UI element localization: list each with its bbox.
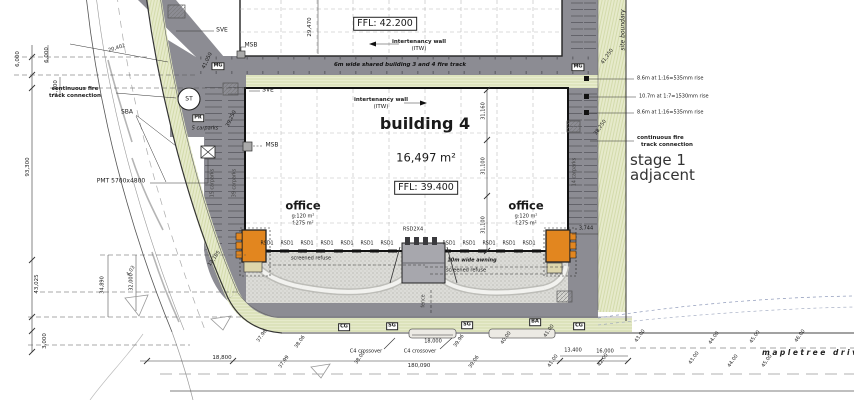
site-plan: FFL: 42.200 building 4 16,497 m² FFL: 39… <box>0 0 854 400</box>
rsd1-label: RSD1 <box>462 241 475 246</box>
rsd1-label: RSD1 <box>380 241 393 246</box>
sve-top-label: SVE <box>216 28 228 35</box>
sba-label: SBA <box>121 110 133 117</box>
msb-side-label: MSB <box>265 143 278 150</box>
dim-18800: 18,800 <box>212 355 231 361</box>
msb-side-unit <box>243 142 252 151</box>
cg-marker-left: CG <box>338 323 350 331</box>
dim-31100-a: 31,100 <box>481 157 487 175</box>
cg-marker-right: CG <box>573 322 585 330</box>
fire-track-label: 6m wide shared building 3 and 4 fire tra… <box>334 62 466 68</box>
ramp-label-1: 8.6m at 1:16=535mm rise <box>637 76 703 82</box>
dim-6000-b: 6,000 <box>44 47 50 63</box>
carparks-39-label: 39 carparks <box>232 169 237 197</box>
dim-13400: 13,400 <box>564 348 582 354</box>
building4-title: building 4 <box>380 115 470 133</box>
dim-180090: 180,090 <box>408 363 431 369</box>
awning-label: 10m wide awning <box>447 258 496 264</box>
office-right-gross: g:120 m² <box>515 214 538 220</box>
carparks-15-label: 15 carparks <box>210 169 215 197</box>
rsd1-label: RSD1 <box>260 241 273 246</box>
screened-refuse-left: screened refuse <box>291 256 331 262</box>
itw-b4-abbr: (ITW) <box>374 104 389 110</box>
dim-3744: 3,744 <box>579 226 593 232</box>
dim-18000: 18,000 <box>424 339 442 345</box>
dim-1100: 1,100 <box>53 80 59 96</box>
stage1-line2: adjacent <box>630 167 695 184</box>
office-right-title: office <box>508 200 543 213</box>
sve-mid-label: SVE <box>262 88 274 95</box>
building4-ffl: FFL: 39.400 <box>394 181 458 195</box>
dim-29470: 29,470 <box>307 17 313 36</box>
dim-31160: 31,160 <box>481 102 487 120</box>
itw-top-abbr: (ITW) <box>412 46 427 52</box>
ramp-label-2: 10.7m at 1:7=1530mm rise <box>639 94 709 100</box>
msb-top-label: MSB <box>244 43 257 50</box>
dim-43025: 43,025 <box>34 274 40 293</box>
ba-marker: BA <box>529 318 541 326</box>
mg-marker-right: MG <box>571 63 584 71</box>
dim-3000: 3,000 <box>42 333 48 349</box>
pmt-label: PMT 5700x4800 <box>97 179 145 186</box>
ramp-label-3: 8.6m at 1:16=535mm rise <box>637 110 703 116</box>
itw-b4-label: intertenancy wall <box>354 97 408 103</box>
sg-marker-right: SG <box>461 321 473 329</box>
rsd1-label: RSD1 <box>340 241 353 246</box>
dim-93300: 93,300 <box>25 157 31 176</box>
carparks-14-label: 14 carparks <box>572 158 577 186</box>
rsd1-label: RSD1 <box>442 241 455 246</box>
rsd1-label: RSD1 <box>502 241 515 246</box>
pr-marker: PR <box>192 114 204 122</box>
rsd1-label: RSD1 <box>522 241 535 246</box>
building4-area: 16,497 m² <box>396 152 456 165</box>
rsd1-label: RSD1 <box>300 241 313 246</box>
cont-fire-right-1: continuous fire <box>637 135 684 141</box>
crossover-label-2: C4 crossover <box>404 349 436 355</box>
office-left-gross: g:120 m² <box>292 214 315 220</box>
carparks-5-label: 5 carparks <box>192 126 218 132</box>
itw-top-label: intertenancy wall <box>392 39 446 45</box>
mapletree-drive-label: mapletree drive <box>762 349 854 357</box>
rsd1-label: RSD1 <box>360 241 373 246</box>
office-left-floor: f:275 m² <box>292 221 313 227</box>
office-right-floor: f:275 m² <box>515 221 536 227</box>
dim-31100-b: 31,100 <box>481 216 487 234</box>
rsd1-label: RSD1 <box>320 241 333 246</box>
rsd2x4-label: RSD2X4 <box>403 227 423 233</box>
sg-marker-left: SG <box>386 322 398 330</box>
dim-34890: 34,890 <box>100 276 106 294</box>
office-left-title: office <box>285 200 320 213</box>
building3-ffl: FFL: 42.200 <box>353 17 417 31</box>
screened-refuse-right: screened refuse <box>446 268 486 274</box>
msb-top-unit <box>237 51 245 58</box>
cont-fire-right-2: track connection <box>641 142 693 148</box>
st-label: ST <box>185 97 192 104</box>
fence-label: fence <box>421 294 426 307</box>
mg-marker-left: MG <box>211 62 224 70</box>
rsd1-label: RSD1 <box>280 241 293 246</box>
dim-6000-a: 6,000 <box>15 51 21 67</box>
rsd1-label: RSD1 <box>482 241 495 246</box>
site-boundary-label: site boundary <box>621 9 628 50</box>
